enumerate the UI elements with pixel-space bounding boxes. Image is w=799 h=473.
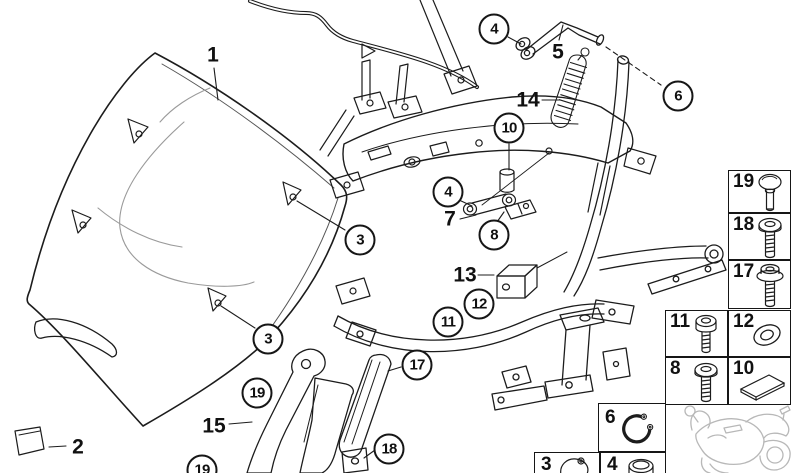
callout-19-upper[interactable]: 19 — [242, 378, 273, 409]
callout-4-top[interactable]: 4 — [479, 14, 510, 45]
damper-block-drawing — [497, 252, 567, 298]
label-15[interactable]: 15 — [202, 416, 225, 437]
cap-icon — [601, 453, 667, 473]
bracket-left-drawing — [247, 349, 353, 473]
windshield-drawing — [27, 53, 346, 426]
callout-4-mid[interactable]: 4 — [433, 177, 464, 208]
callout-12[interactable]: 12 — [464, 289, 495, 320]
callout-11[interactable]: 11 — [433, 307, 464, 338]
callout-17[interactable]: 17 — [402, 350, 433, 381]
spacer-plate-icon — [729, 358, 792, 406]
legend-box-4[interactable]: 4 — [600, 452, 666, 473]
pan-head-screw-icon — [729, 214, 792, 261]
legend-box-12[interactable]: 12 — [728, 310, 791, 357]
washer-icon — [729, 311, 792, 358]
oval-head-screw-icon — [729, 171, 792, 214]
callout-6[interactable]: 6 — [663, 81, 694, 112]
label-5[interactable]: 5 — [552, 42, 564, 63]
trim-rod-drawing — [250, 1, 477, 87]
label-7[interactable]: 7 — [444, 209, 456, 230]
parts-diagram-canvas: 4 6 10 4 8 3 12 11 3 17 19 18 19 1 5 14 … — [0, 0, 799, 473]
legend-box-8[interactable]: 8 — [665, 357, 728, 405]
label-1[interactable]: 1 — [207, 45, 219, 66]
retaining-ring-icon — [599, 404, 667, 453]
socket-head-screw-icon — [666, 311, 729, 358]
stand-leg-drawing — [564, 55, 629, 296]
callout-3-lower[interactable]: 3 — [253, 324, 284, 355]
label-14[interactable]: 14 — [516, 90, 539, 111]
pan-head-screw-icon — [666, 358, 729, 406]
legend-box-11[interactable]: 11 — [665, 310, 728, 357]
callout-18[interactable]: 18 — [374, 434, 405, 465]
label-2[interactable]: 2 — [72, 437, 84, 458]
trim-plate-drawing — [15, 427, 44, 455]
legend-box-19[interactable]: 19 — [728, 170, 791, 213]
motorcycle-thumbnail — [680, 402, 799, 473]
rubber-grommet-icon — [535, 453, 601, 473]
legend-box-18[interactable]: 18 — [728, 213, 791, 260]
callout-3-upper[interactable]: 3 — [345, 225, 376, 256]
callout-10[interactable]: 10 — [494, 113, 525, 144]
legend-box-17[interactable]: 17 — [728, 260, 791, 309]
legend-box-3[interactable]: 3 — [534, 452, 600, 473]
legend-box-10[interactable]: 10 — [728, 357, 791, 405]
legend-box-6[interactable]: 6 — [598, 403, 666, 452]
flange-bolt-icon — [729, 261, 792, 310]
callout-8[interactable]: 8 — [479, 220, 510, 251]
adjuster-link-drawing — [464, 153, 550, 219]
label-13[interactable]: 13 — [453, 265, 476, 286]
